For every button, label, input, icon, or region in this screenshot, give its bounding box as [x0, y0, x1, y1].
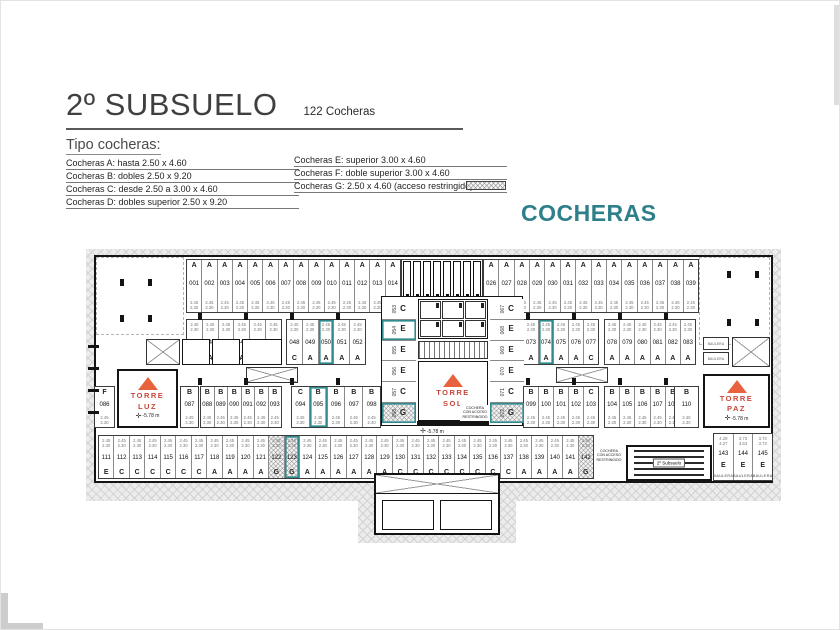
- stall-dims: 2.452.30: [303, 438, 311, 449]
- stall-001: A0012.452.30: [187, 260, 202, 312]
- stall-number: 097: [349, 402, 359, 409]
- dim-value: 2.30: [566, 443, 574, 448]
- stall-number: 106: [637, 402, 647, 409]
- stall-dims: 2.452.30: [164, 438, 172, 449]
- column-mark: [198, 378, 202, 385]
- stall-number: 144: [738, 451, 748, 458]
- stall-letter: C: [197, 469, 202, 477]
- tower-name-line: PAZ: [727, 404, 746, 413]
- right-core-stair-detail: [732, 337, 770, 367]
- dim-value: 2.30: [557, 420, 565, 425]
- stall-number: 050: [321, 340, 331, 347]
- stall-dims: 2.452.30: [338, 322, 346, 333]
- stall-126: 2.452.30126A: [331, 436, 346, 478]
- stall-letter: A: [283, 262, 288, 270]
- stall-letter: F: [102, 389, 106, 397]
- stall-number: 105: [622, 402, 632, 409]
- stall-letter: A: [565, 262, 570, 270]
- stall-number: 130: [395, 455, 405, 462]
- stall-number: 137: [503, 455, 513, 462]
- column-mark: [618, 313, 622, 320]
- stall-number: 112: [117, 455, 127, 462]
- stall-055: 055E: [382, 341, 416, 362]
- stall-number: 012: [357, 281, 367, 288]
- stall-102: B1022.452.30: [569, 387, 584, 427]
- stall-dims: 2.452.30: [312, 300, 320, 311]
- stall-number: 075: [556, 340, 566, 347]
- dim-value: 2.30: [358, 305, 366, 310]
- stall-number: 128: [364, 455, 374, 462]
- stall-dims: 2.452.30: [100, 415, 108, 426]
- dim-value: 2.30: [190, 305, 198, 310]
- stall-letter: A: [642, 262, 647, 270]
- stall-104: B1042.452.30: [605, 387, 620, 427]
- stall-dims: 2.452.30: [354, 322, 362, 333]
- stall-124: 2.452.30124A: [300, 436, 315, 478]
- stall-032: A0322.452.30: [576, 260, 591, 312]
- dim-value: 2.30: [257, 420, 265, 425]
- stall-letter: A: [528, 355, 533, 363]
- stall-letter: B: [655, 389, 660, 397]
- page-subtitle: 122 Cocheras: [304, 106, 376, 123]
- tower-footprint-right: [699, 257, 770, 345]
- level-marker: ✛-5.78 m: [136, 413, 160, 420]
- dim-value: 2.30: [306, 327, 314, 332]
- stall-letter: A: [305, 469, 310, 477]
- stall-number: 002: [204, 281, 214, 288]
- stall-number: 049: [305, 340, 315, 347]
- stall-number: 140: [550, 455, 560, 462]
- stall-letter: A: [688, 262, 693, 270]
- stall-letter: C: [400, 388, 406, 397]
- dim-value: 2.30: [296, 420, 304, 425]
- elevator-bank: [418, 299, 488, 339]
- stall-dims: 2.452.30: [266, 300, 274, 311]
- stall-112: 2.452.30112C: [114, 436, 129, 478]
- stall-dims: 2.452.30: [190, 322, 198, 333]
- column-mark: [572, 378, 576, 385]
- dim-value: 2.30: [303, 443, 311, 448]
- restricted-access-note: COCHERA CON ACCESO RESTRINGIDO: [460, 405, 490, 421]
- stall-031: A0312.452.30: [561, 260, 576, 312]
- stall-number: 037: [655, 281, 665, 288]
- stall-number: 013: [373, 281, 383, 288]
- stall-dims: 2.452.30: [608, 415, 616, 426]
- stall-dims: 2.452.30: [133, 438, 141, 449]
- stall-dims: 2.452.30: [579, 300, 587, 311]
- stall-number: 127: [349, 455, 359, 462]
- tower-name-line: TORRE: [720, 394, 754, 403]
- stall-dims: 2.452.30: [102, 438, 110, 449]
- stall-dims: 2.452.30: [358, 300, 366, 311]
- stall-letter: B: [187, 389, 192, 397]
- stall-140: 2.452.30140A: [548, 436, 563, 478]
- stall-letter: G: [508, 409, 514, 418]
- stall-letter: C: [588, 389, 593, 397]
- stall-083: 2.452.30083A: [681, 320, 695, 364]
- stall-009: A0092.452.30: [309, 260, 324, 312]
- stall-143: 4.294.27143EBAULERA: [714, 434, 734, 480]
- dim-value: 2.30: [669, 327, 677, 332]
- dim-value: 2.30: [572, 420, 580, 425]
- stall-dims: 3.733.73: [759, 436, 767, 447]
- scan-artifact: [834, 5, 839, 105]
- dim-value: 2.30: [368, 420, 376, 425]
- pit-structure: [374, 473, 500, 535]
- stall-number: 032: [578, 281, 588, 288]
- stall-098: B0982.452.30: [363, 387, 380, 427]
- dim-value: 2.30: [203, 420, 211, 425]
- dim-value: 2.30: [334, 443, 342, 448]
- left-core-room: [212, 339, 240, 365]
- stall-letter: E: [104, 469, 109, 477]
- stall-071: 071C: [490, 382, 524, 403]
- stall-letter: A: [344, 262, 349, 270]
- stall-letter: E: [508, 346, 513, 355]
- dim-value: 3.73: [759, 441, 767, 446]
- stall-030: A0302.452.30: [545, 260, 560, 312]
- stall-122: 2.452.30122G: [269, 436, 284, 478]
- stall-letter: B: [351, 389, 356, 397]
- stall-073: 2.452.30073A: [524, 320, 539, 364]
- left-core-room: [242, 339, 282, 365]
- stall-number: 070: [500, 367, 506, 375]
- baulera-label: BAULERA: [753, 474, 773, 478]
- dim-value: 2.30: [354, 327, 362, 332]
- stall-number: 001: [189, 281, 199, 288]
- column-mark: [148, 279, 152, 286]
- dim-value: 4.27: [719, 441, 727, 446]
- stall-dims: 2.452.30: [520, 438, 528, 449]
- stall-number: 072: [500, 409, 506, 417]
- stall-letter: C: [508, 388, 514, 397]
- stall-letter: A: [192, 262, 197, 270]
- dim-value: 2.30: [164, 443, 172, 448]
- stall-letter: A: [268, 262, 273, 270]
- dim-value: 2.30: [442, 443, 450, 448]
- stall-089: B0892.452.30: [215, 387, 229, 427]
- tower-name-line: LUZ: [138, 402, 157, 411]
- stall-dims: 2.452.30: [217, 415, 225, 426]
- pit-room: [382, 500, 434, 530]
- stall-132: 2.452.30132C: [424, 436, 439, 478]
- stall-letter: A: [390, 262, 395, 270]
- tower-name-line: TORRE: [131, 391, 165, 400]
- stall-letter: B: [558, 389, 563, 397]
- stall-dims: 2.452.30: [222, 322, 230, 333]
- stall-letter: A: [543, 355, 548, 363]
- legend-item-text: Cocheras E: superior 3.00 x 4.60: [294, 155, 426, 165]
- stall-dims: 2.452.30: [442, 438, 450, 449]
- stall-number: 048: [289, 340, 299, 347]
- elevator-cell: [420, 320, 441, 338]
- stall-number: 102: [571, 402, 581, 409]
- dim-value: 2.30: [272, 443, 280, 448]
- stall-letter: C: [166, 469, 171, 477]
- stall-068: 068E: [490, 320, 524, 341]
- dim-value: 2.30: [572, 327, 580, 332]
- note-line: RESTRINGIDO: [461, 415, 489, 420]
- stall-number: 076: [571, 340, 581, 347]
- level-marker-icon: ✛: [725, 415, 731, 422]
- stall-dims: 2.452.30: [314, 415, 322, 426]
- stall-number: 006: [266, 281, 276, 288]
- stall-letter: A: [640, 355, 645, 363]
- column-mark: [618, 378, 622, 385]
- stall-069: 069E: [490, 341, 524, 362]
- stall-078: 2.452.30078A: [605, 320, 620, 364]
- wall-stub: [88, 389, 99, 392]
- dim-value: 2.30: [656, 305, 664, 310]
- stall-006: A0062.452.30: [263, 260, 278, 312]
- dim-value: 2.30: [549, 305, 557, 310]
- stall-114: 2.452.30114C: [145, 436, 160, 478]
- dim-value: 2.30: [638, 420, 646, 425]
- stall-number: 111: [102, 455, 111, 462]
- stall-054: 054E: [382, 320, 416, 341]
- stall-111: 2.452.30111E: [99, 436, 114, 478]
- dim-value: 2.30: [269, 327, 277, 332]
- stall-letter: A: [568, 469, 573, 477]
- stall-letter: A: [336, 469, 341, 477]
- stall-letter: C: [292, 355, 297, 363]
- dim-value: 2.30: [222, 327, 230, 332]
- stall-dims: 2.452.30: [566, 438, 574, 449]
- stall-letter: A: [351, 469, 356, 477]
- baulera-cluster: [401, 259, 483, 301]
- stall-dims: 2.452.30: [221, 300, 229, 311]
- core-stairs: [418, 341, 488, 359]
- dim-value: 2.30: [343, 305, 351, 310]
- dim-value: 2.30: [221, 305, 229, 310]
- stall-number: 010: [327, 281, 337, 288]
- dim-value: 2.30: [102, 443, 110, 448]
- stall-row-top-left: A0012.452.30A0022.452.30A0032.452.30A004…: [186, 259, 401, 313]
- stall-number: 101: [556, 402, 566, 409]
- stall-number: 120: [240, 455, 250, 462]
- stall-051: 2.452.30051A: [334, 320, 350, 364]
- stall-095: B0952.452.30: [310, 387, 328, 427]
- stall-number: 053: [392, 305, 398, 313]
- dim-value: 2.30: [412, 443, 420, 448]
- stall-number: 038: [670, 281, 680, 288]
- dim-value: 2.30: [687, 305, 695, 310]
- stall-letter: E: [508, 367, 513, 376]
- dim-value: 2.30: [625, 305, 633, 310]
- header-rule: [66, 128, 463, 130]
- stall-103: C1032.452.30: [584, 387, 598, 427]
- stall-letter: A: [243, 469, 248, 477]
- stall-119: 2.452.30119A: [223, 436, 238, 478]
- column-mark: [572, 313, 576, 320]
- stall-dims: 2.452.30: [669, 322, 677, 333]
- stall-dims: 2.452.30: [210, 438, 218, 449]
- stall-dims: 2.452.30: [527, 415, 535, 426]
- wall-stub: [88, 367, 99, 370]
- stall-dims: 2.452.30: [557, 415, 565, 426]
- stall-088: B0882.452.30: [201, 387, 215, 427]
- stall-dims: 2.452.30: [557, 322, 565, 333]
- stall-number: 089: [216, 402, 226, 409]
- pit-cross-panel: [376, 475, 498, 494]
- stall-number: 009: [311, 281, 321, 288]
- stall-079: 2.452.30079A: [620, 320, 635, 364]
- tower-triangle-icon: [138, 377, 158, 390]
- stall-row-mid-left-b: 2.452.30048C2.452.30049A2.452.30050A2.45…: [286, 319, 366, 365]
- stall-003: A0032.452.30: [218, 260, 233, 312]
- column-mark: [290, 378, 294, 385]
- stall-dims: 2.452.30: [641, 300, 649, 311]
- dim-value: 2.30: [557, 327, 565, 332]
- dim-value: 2.30: [322, 327, 330, 332]
- stall-number: 068: [500, 326, 506, 334]
- dim-value: 2.30: [185, 420, 193, 425]
- stall-dims: 2.452.30: [306, 322, 314, 333]
- dim-value: 2.30: [195, 443, 203, 448]
- stall-123: 2.452.30123G: [285, 436, 300, 478]
- stall-dims: 2.452.30: [272, 438, 280, 449]
- stall-number: 095: [313, 402, 323, 409]
- stall-090: B0902.452.30: [228, 387, 242, 427]
- stall-087: B0872.452.30: [181, 387, 198, 427]
- stall-dims: 2.452.30: [572, 415, 580, 426]
- stall-072: 072G: [490, 403, 524, 423]
- stall-letter: B: [528, 389, 533, 397]
- stall-096: B0962.452.30: [328, 387, 346, 427]
- level-label: -5.78 m: [731, 416, 748, 422]
- stall-number: 091: [243, 402, 253, 409]
- stall-row-b-left-b: C0942.452.30B0952.452.30B0962.452.30B097…: [291, 386, 381, 428]
- dim-value: 2.30: [595, 305, 603, 310]
- dim-value: 2.30: [458, 443, 466, 448]
- stall-number: 028: [517, 281, 527, 288]
- stall-dims: 2.452.30: [654, 322, 662, 333]
- stall-number: 113: [132, 455, 142, 462]
- stall-081: 2.452.30081A: [651, 320, 666, 364]
- stall-dims: 2.452.30: [297, 300, 305, 311]
- stall-number: 114: [148, 455, 158, 462]
- stall-dims: 2.452.30: [205, 300, 213, 311]
- stall-011: A0112.452.30: [340, 260, 355, 312]
- dim-value: 2.30: [608, 327, 616, 332]
- stall-number: 036: [640, 281, 650, 288]
- stall-letter: A: [253, 262, 258, 270]
- stall-letter: A: [308, 355, 313, 363]
- stall-letter: A: [573, 355, 578, 363]
- level-marker-icon: ✛: [420, 428, 426, 435]
- stall-row-mid-right-b: 2.452.30078A2.452.30079A2.452.30080A2.45…: [604, 319, 696, 365]
- stall-letter: A: [537, 469, 542, 477]
- ramp-hatch-band: [586, 481, 780, 501]
- stall-092: B0922.452.30: [255, 387, 269, 427]
- stall-letter: A: [612, 262, 617, 270]
- stall-number: 107: [653, 402, 663, 409]
- stall-dims: 2.452.30: [288, 438, 296, 449]
- stall-dims: 2.452.30: [527, 322, 535, 333]
- baulera-cell: [413, 261, 422, 299]
- dim-value: 2.30: [542, 327, 550, 332]
- stall-letter: C: [181, 469, 186, 477]
- legend-item-text: Cocheras F: doble superior 3.00 x 4.60: [294, 168, 450, 178]
- legend-left-column: Cocheras A: hasta 2.50 x 4.60Cocheras B:…: [66, 157, 299, 209]
- stall-letter: A: [504, 262, 509, 270]
- stall-number: 129: [380, 455, 390, 462]
- dim-value: 2.30: [582, 443, 590, 448]
- column-mark: [727, 271, 731, 278]
- level-label: -5.78 m: [142, 413, 159, 419]
- stall-099: B0992.452.30: [524, 387, 539, 427]
- stall-number: 054: [392, 326, 398, 334]
- stall-number: 123: [287, 455, 297, 462]
- dim-value: 2.30: [638, 327, 646, 332]
- stall-letter: A: [685, 355, 690, 363]
- dim-value: 2.30: [210, 443, 218, 448]
- stall-number: 118: [210, 455, 220, 462]
- central-core: 053C054E055E056E057C058G TORRE SOL 067C0…: [381, 296, 523, 426]
- stall-number: 141: [565, 455, 575, 462]
- stall-144: 3.733.53144EBAULERA: [734, 434, 754, 480]
- dim-value: 3.53: [739, 441, 747, 446]
- stall-number: 116: [179, 455, 189, 462]
- baulera-room: BAULERA: [703, 337, 729, 350]
- stall-dims: 2.452.30: [180, 438, 188, 449]
- dim-value: 2.30: [180, 443, 188, 448]
- stall-105: B1052.452.30: [620, 387, 635, 427]
- dim-value: 2.30: [244, 420, 252, 425]
- stall-number: 067: [500, 305, 506, 313]
- dim-value: 2.30: [338, 327, 346, 332]
- dim-value: 2.30: [641, 305, 649, 310]
- stall-117: 2.452.30117C: [192, 436, 207, 478]
- stall-010: A0102.452.30: [325, 260, 340, 312]
- stall-number: 004: [235, 281, 245, 288]
- stall-107: B1072.452.30: [651, 387, 666, 427]
- stall-letter: G: [583, 469, 588, 477]
- header: 2º SUBSUELO 122 Cocheras: [66, 87, 375, 123]
- stall-number: 071: [500, 388, 506, 396]
- column-mark: [664, 313, 668, 320]
- stall-number: 103: [586, 402, 596, 409]
- stall-letter: G: [289, 469, 294, 477]
- dim-value: 2.30: [535, 443, 543, 448]
- stall-number: 081: [653, 340, 663, 347]
- stall-dims: 2.452.30: [206, 322, 214, 333]
- stall-number: 069: [500, 346, 506, 354]
- stall-dims: 2.452.30: [350, 415, 358, 426]
- stall-number: 082: [668, 340, 678, 347]
- stall-dims: 2.452.30: [118, 438, 126, 449]
- legend-item: Cocheras D: dobles superior 2.50 x 9.20: [66, 196, 299, 209]
- stall-number: 051: [337, 340, 347, 347]
- stall-058: 058G: [382, 403, 416, 423]
- dim-value: 2.30: [257, 443, 265, 448]
- legend-item-text: Cocheras B: dobles 2.50 x 9.20: [66, 171, 192, 181]
- dim-value: 2.30: [226, 443, 234, 448]
- stall-letter: G: [400, 409, 406, 418]
- stall-number: 131: [411, 455, 421, 462]
- baulera-cell: [403, 261, 412, 299]
- tower-name-line: TORRE: [436, 388, 470, 397]
- stall-075: 2.452.30075A: [554, 320, 569, 364]
- dim-value: 2.30: [684, 327, 692, 332]
- stall-048: 2.452.30048C: [287, 320, 303, 364]
- stall-dims: 2.452.30: [549, 300, 557, 311]
- stall-142: 2.452.30142G: [579, 436, 593, 478]
- legend-item-text: Cocheras A: hasta 2.50 x 4.60: [66, 158, 187, 168]
- stall-dims: 2.452.30: [319, 438, 327, 449]
- baulera-cell: [463, 261, 472, 299]
- stall-dims: 2.452.30: [149, 438, 157, 449]
